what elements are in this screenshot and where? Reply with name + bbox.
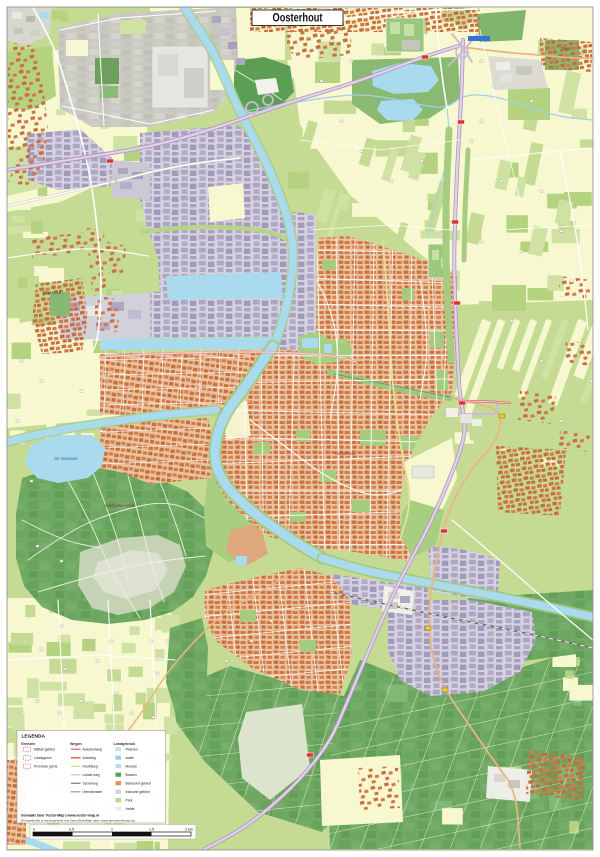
svg-text:Bossen: Bossen (126, 773, 137, 777)
svg-text:Heide: Heide (126, 807, 135, 811)
svg-text:Rivieren: Rivieren (126, 748, 139, 752)
svg-text:Wegen: Wegen (70, 742, 82, 746)
svg-text:Park: Park (126, 799, 133, 803)
svg-text:Militair gebied: Militair gebied (34, 748, 55, 752)
svg-text:Lokale weg: Lokale weg (83, 773, 100, 777)
svg-text:Grenzen: Grenzen (21, 742, 35, 746)
svg-text:Den Hout: Den Hout (43, 290, 62, 295)
svg-text:Hoofdweg: Hoofdweg (83, 765, 98, 769)
svg-text:Bebouwd gebied: Bebouwd gebied (126, 782, 151, 786)
svg-text:Autoweg: Autoweg (83, 756, 96, 760)
svg-text:Veerdiensten: Veerdiensten (83, 790, 103, 794)
svg-text:Oosterhout: Oosterhout (335, 451, 357, 456)
svg-text:Industrie gebied: Industrie gebied (126, 790, 150, 794)
svg-text:Moeras: Moeras (126, 765, 138, 769)
svg-text:Landgebruik: Landgebruik (114, 742, 136, 746)
svg-text:Landsgrens: Landsgrens (34, 756, 52, 760)
svg-text:0: 0 (33, 827, 35, 831)
svg-text:Spoorweg: Spoorweg (83, 782, 98, 786)
svg-text:Gemaakt door Vector-Map | www.: Gemaakt door Vector-Map | www.vector-map… (21, 814, 99, 818)
svg-text:Dorst: Dorst (561, 46, 572, 51)
svg-text:1: 1 (111, 827, 113, 831)
svg-text:1,5: 1,5 (149, 827, 154, 831)
svg-text:2 km: 2 km (185, 827, 193, 831)
svg-text:Oosterhout: Oosterhout (273, 13, 323, 25)
svg-text:De Warande: De Warande (54, 456, 78, 461)
svg-text:Autosnelweg: Autosnelweg (83, 748, 103, 752)
svg-text:0,5: 0,5 (69, 827, 74, 831)
svg-text:LEGENDA: LEGENDA (22, 734, 46, 740)
svg-text:Dit kaartbeeld is samengesteld: Dit kaartbeeld is samengesteld met OpenS… (21, 819, 135, 823)
svg-text:Provincie grens: Provincie grens (34, 765, 58, 769)
svg-text:Vrachelse Heide: Vrachelse Heide (105, 503, 136, 508)
svg-text:water: water (126, 756, 135, 760)
